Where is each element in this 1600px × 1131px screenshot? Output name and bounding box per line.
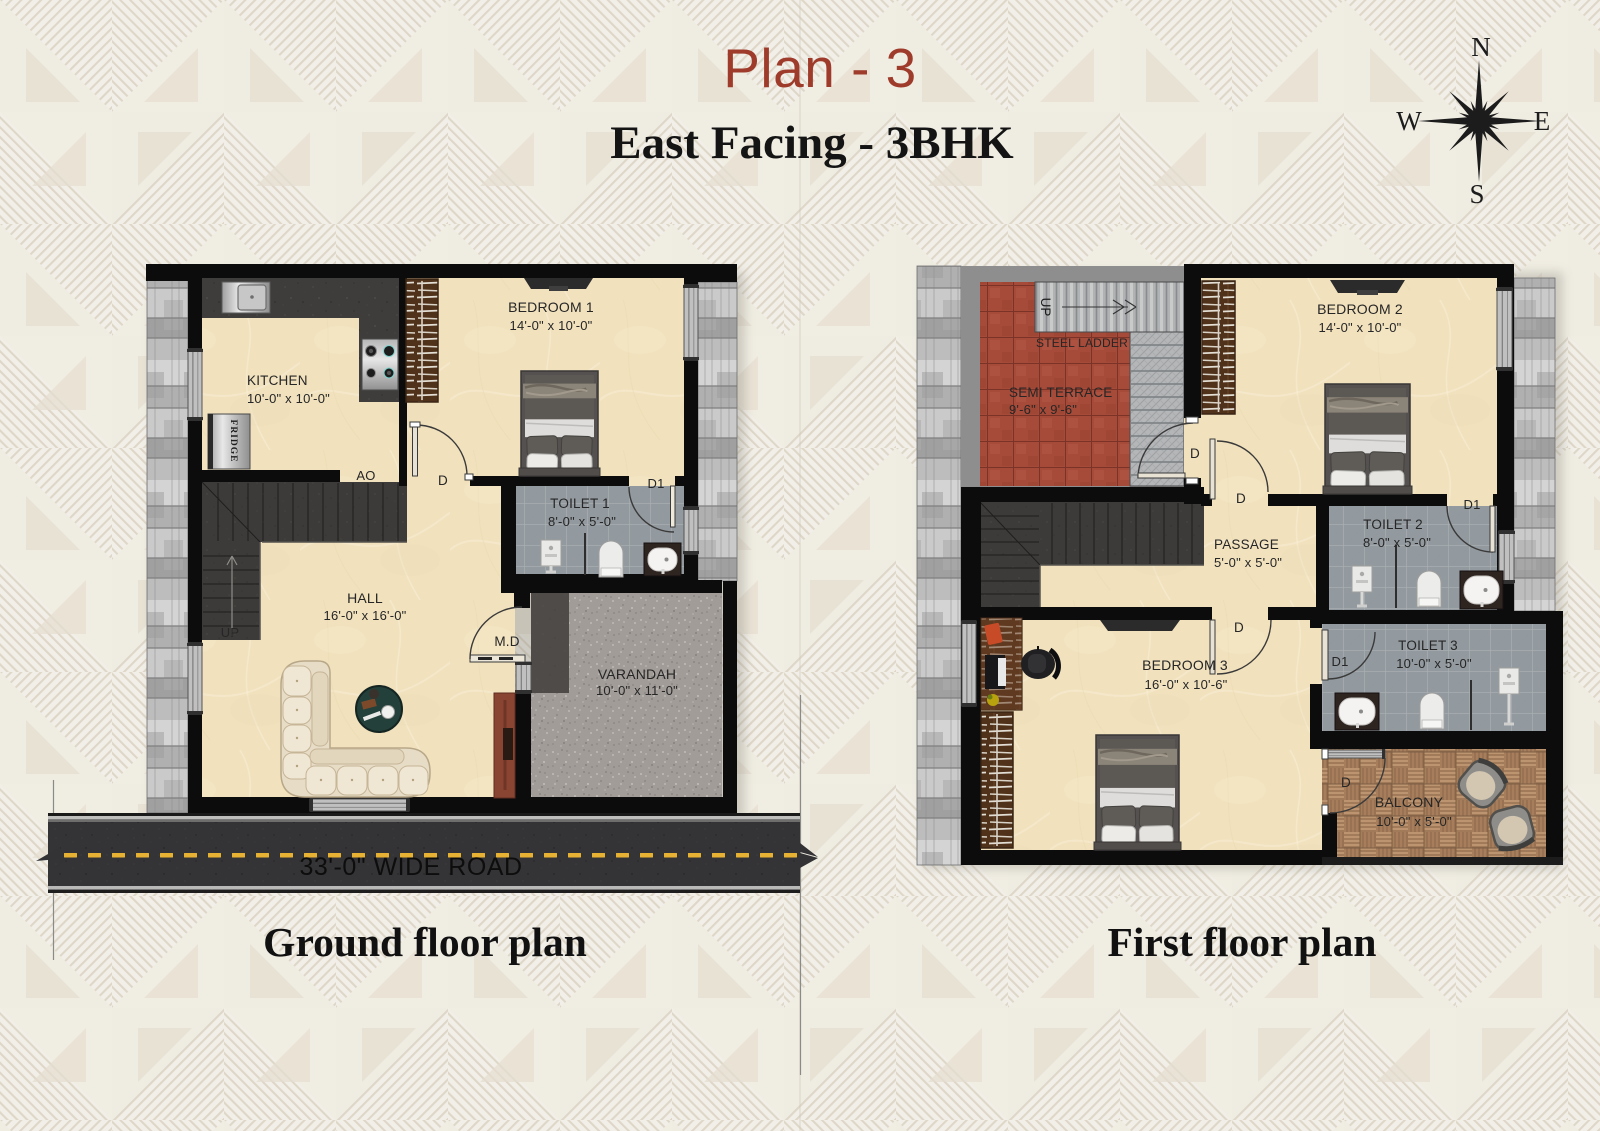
svg-text:10'-0" x 5'-0": 10'-0" x 5'-0" — [1376, 814, 1452, 829]
svg-text:D: D — [1190, 446, 1200, 461]
svg-text:BEDROOM 3: BEDROOM 3 — [1142, 657, 1228, 673]
svg-text:Plan - 3: Plan - 3 — [723, 37, 917, 99]
svg-text:TOILET 3: TOILET 3 — [1398, 638, 1458, 653]
svg-text:BALCONY: BALCONY — [1375, 794, 1444, 810]
svg-text:33'-0" WIDE ROAD: 33'-0" WIDE ROAD — [299, 853, 522, 881]
svg-text:East Facing - 3BHK: East Facing - 3BHK — [610, 117, 1014, 169]
svg-text:TOILET 2: TOILET 2 — [1363, 517, 1423, 532]
svg-text:S: S — [1469, 179, 1484, 209]
svg-text:TOILET 1: TOILET 1 — [550, 496, 610, 511]
svg-text:14'-0" x 10'-0": 14'-0" x 10'-0" — [510, 318, 593, 333]
svg-text:10'-0" x 5'-0": 10'-0" x 5'-0" — [1396, 656, 1472, 671]
svg-text:10'-0" x 10'-0": 10'-0" x 10'-0" — [247, 391, 330, 406]
svg-text:W: W — [1396, 106, 1422, 136]
svg-text:9'-6" x 9'-6": 9'-6" x 9'-6" — [1009, 402, 1077, 417]
svg-text:D: D — [1341, 775, 1351, 790]
svg-text:D: D — [1234, 620, 1244, 635]
svg-text:KITCHEN: KITCHEN — [247, 373, 308, 388]
svg-text:UP: UP — [221, 625, 239, 640]
svg-text:UP: UP — [1038, 298, 1053, 317]
svg-text:HALL: HALL — [347, 590, 383, 606]
svg-text:16'-0" x 16'-0": 16'-0" x 16'-0" — [324, 608, 407, 623]
svg-text:16'-0" x 10'-6": 16'-0" x 10'-6" — [1145, 677, 1228, 692]
svg-text:10'-0" x 11'-0": 10'-0" x 11'-0" — [596, 683, 678, 698]
svg-text:Ground floor plan: Ground floor plan — [263, 919, 587, 965]
svg-text:D1: D1 — [1463, 497, 1480, 512]
svg-text:FRIDGE: FRIDGE — [228, 420, 238, 463]
svg-text:8'-0" x 5'-0": 8'-0" x 5'-0" — [548, 514, 616, 529]
svg-text:D1: D1 — [647, 476, 664, 491]
svg-text:M.D: M.D — [494, 634, 519, 649]
svg-text:PASSAGE: PASSAGE — [1214, 537, 1279, 552]
svg-text:BEDROOM 1: BEDROOM 1 — [508, 299, 594, 315]
svg-text:D1: D1 — [1331, 654, 1348, 669]
svg-text:D: D — [438, 473, 448, 488]
svg-text:STEEL LADDER: STEEL LADDER — [1036, 336, 1128, 350]
svg-text:BEDROOM 2: BEDROOM 2 — [1317, 301, 1403, 317]
svg-text:D: D — [1236, 491, 1246, 506]
svg-text:VARANDAH: VARANDAH — [598, 666, 676, 682]
svg-text:14'-0" x 10'-0": 14'-0" x 10'-0" — [1319, 320, 1402, 335]
svg-text:AO: AO — [356, 468, 375, 483]
svg-text:First floor plan: First floor plan — [1108, 919, 1377, 965]
svg-text:SEMI TERRACE: SEMI TERRACE — [1009, 385, 1112, 400]
svg-text:N: N — [1471, 32, 1491, 62]
svg-text:8'-0" x 5'-0": 8'-0" x 5'-0" — [1363, 535, 1431, 550]
svg-text:5'-0" x 5'-0": 5'-0" x 5'-0" — [1214, 555, 1282, 570]
svg-text:E: E — [1534, 106, 1551, 136]
